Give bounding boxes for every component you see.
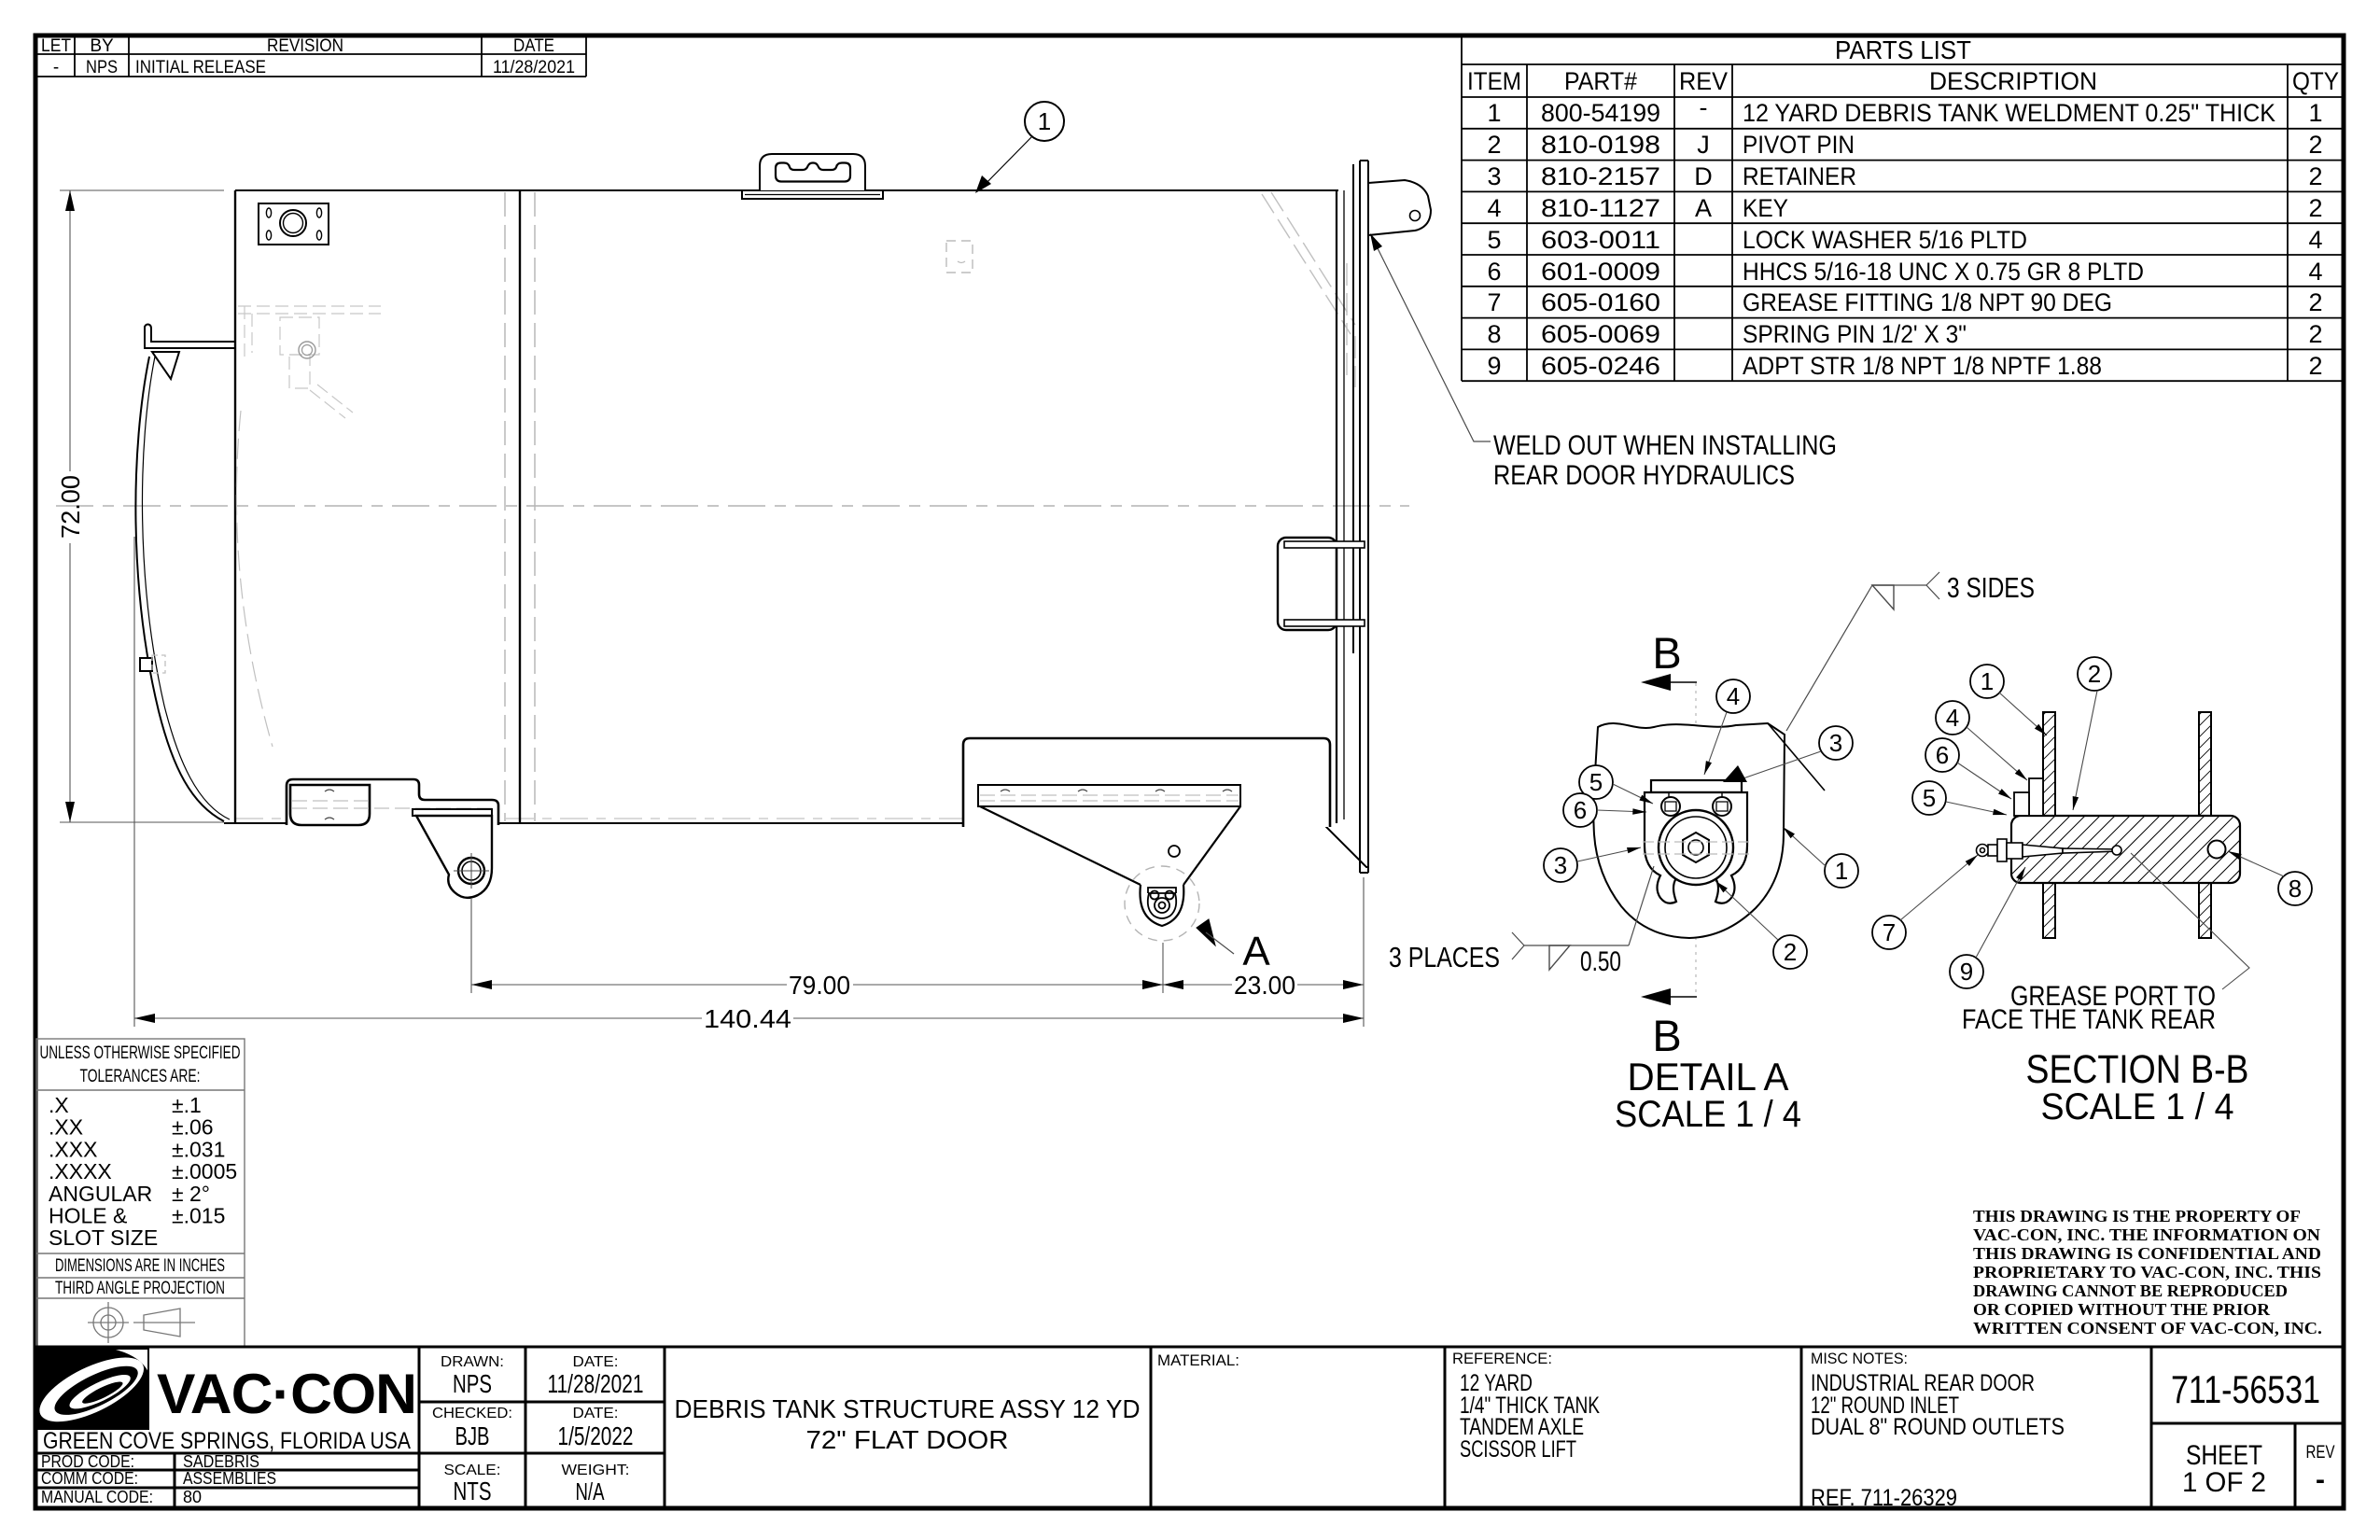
svg-text:TOLERANCES ARE:: TOLERANCES ARE:	[80, 1067, 201, 1086]
svg-text:DIMENSIONS ARE IN INCHES: DIMENSIONS ARE IN INCHES	[55, 1256, 225, 1276]
svg-text:DATE:: DATE:	[573, 1406, 619, 1421]
svg-text:HOLE &: HOLE &	[49, 1204, 127, 1228]
svg-text:2: 2	[2308, 288, 2322, 316]
svg-text:±.015: ±.015	[172, 1204, 225, 1228]
svg-text:8: 8	[1487, 320, 1501, 348]
svg-text:WELD OUT WHEN INSTALLING: WELD OUT WHEN INSTALLING	[1493, 430, 1837, 461]
svg-text:NTS: NTS	[454, 1477, 492, 1505]
svg-text:MANUAL CODE:: MANUAL CODE:	[41, 1488, 153, 1506]
svg-text:± 2°: ± 2°	[172, 1182, 210, 1206]
svg-text:REF. 711-26329: REF. 711-26329	[1811, 1485, 1957, 1511]
svg-text:2: 2	[2308, 320, 2322, 348]
svg-text:5: 5	[1487, 226, 1501, 254]
svg-text:DATE: DATE	[513, 36, 554, 56]
svg-text:B: B	[1652, 628, 1681, 678]
svg-text:711-56531: 711-56531	[2171, 1367, 2320, 1411]
svg-text:.XXX: .XXX	[49, 1137, 97, 1161]
svg-text:NPS: NPS	[453, 1369, 492, 1398]
svg-text:±.031: ±.031	[172, 1137, 225, 1161]
svg-text:PROD CODE:: PROD CODE:	[41, 1452, 134, 1471]
svg-text:D: D	[1694, 162, 1713, 190]
svg-text:UNLESS OTHERWISE SPECIFIED: UNLESS OTHERWISE SPECIFIED	[40, 1043, 241, 1063]
svg-text:810-0198: 810-0198	[1541, 131, 1660, 159]
svg-text:4: 4	[1946, 704, 1959, 732]
svg-text:2: 2	[2308, 194, 2322, 222]
svg-text:1 OF 2: 1 OF 2	[2182, 1467, 2266, 1498]
svg-text:810-1127: 810-1127	[1541, 194, 1660, 222]
svg-text:SLOT SIZE: SLOT SIZE	[49, 1225, 158, 1250]
svg-text:REV: REV	[1679, 67, 1728, 95]
svg-text:BJB: BJB	[455, 1421, 490, 1450]
svg-text:11/28/2021: 11/28/2021	[493, 58, 575, 77]
svg-text:COMM CODE:: COMM CODE:	[41, 1469, 138, 1488]
svg-text:DESCRIPTION: DESCRIPTION	[1929, 67, 2097, 95]
svg-text:SADEBRIS: SADEBRIS	[183, 1452, 259, 1471]
svg-text:8: 8	[2289, 875, 2302, 903]
svg-text:PART#: PART#	[1564, 67, 1637, 95]
svg-text:1: 1	[2308, 99, 2322, 127]
svg-text:9: 9	[1487, 352, 1501, 380]
svg-text:BY: BY	[90, 36, 114, 56]
svg-text:DATE:: DATE:	[573, 1354, 619, 1370]
svg-text:ANGULAR: ANGULAR	[49, 1182, 152, 1206]
svg-text:GREASE FITTING 1/8 NPT 90 DEG: GREASE FITTING 1/8 NPT 90 DEG	[1743, 288, 2112, 316]
svg-text:VAC·CON: VAC·CON	[157, 1363, 416, 1425]
svg-text:3: 3	[1554, 851, 1567, 879]
svg-text:2: 2	[2308, 162, 2322, 190]
svg-text:ADPT STR 1/8 NPT 1/8 NPTF 1.88: ADPT STR 1/8 NPT 1/8 NPTF 1.88	[1743, 352, 2102, 380]
svg-text:1: 1	[1038, 107, 1051, 135]
svg-text:INITIAL RELEASE: INITIAL RELEASE	[135, 58, 266, 77]
svg-text:SCALE 1 / 4: SCALE 1 / 4	[1615, 1094, 1801, 1135]
svg-text:MATERIAL:: MATERIAL:	[1157, 1351, 1239, 1369]
svg-text:0.50: 0.50	[1580, 946, 1621, 977]
svg-text:2: 2	[2088, 660, 2101, 688]
svg-text:80: 80	[183, 1488, 202, 1506]
svg-text:HHCS 5/16-18 UNC X 0.75 GR 8 P: HHCS 5/16-18 UNC X 0.75 GR 8 PLTD	[1743, 258, 2144, 286]
svg-text:72.00: 72.00	[56, 475, 85, 539]
svg-text:OR COPIED WITHOUT THE PRIOR: OR COPIED WITHOUT THE PRIOR	[1973, 1300, 2270, 1319]
svg-text:±.06: ±.06	[172, 1115, 214, 1140]
svg-text:±.0005: ±.0005	[172, 1159, 237, 1183]
svg-text:6: 6	[1487, 258, 1501, 286]
svg-text:DETAIL A: DETAIL A	[1628, 1055, 1789, 1099]
svg-text:REFERENCE:: REFERENCE:	[1452, 1350, 1552, 1367]
svg-text:DRAWN:: DRAWN:	[441, 1354, 504, 1370]
svg-text:QTY: QTY	[2292, 67, 2339, 95]
svg-text:VAC-CON, INC. THE INFORMATION: VAC-CON, INC. THE INFORMATION ON	[1973, 1225, 2320, 1244]
svg-text:NPS: NPS	[86, 58, 118, 77]
svg-text:72" FLAT DOOR: 72" FLAT DOOR	[806, 1425, 1009, 1454]
svg-text:605-0246: 605-0246	[1541, 352, 1660, 380]
svg-text:PIVOT PIN: PIVOT PIN	[1743, 131, 1855, 159]
svg-text:79.00: 79.00	[789, 971, 850, 1000]
svg-text:11/28/2021: 11/28/2021	[548, 1369, 644, 1398]
svg-text:REVISION: REVISION	[267, 36, 343, 56]
svg-text:B: B	[1652, 1011, 1681, 1060]
svg-text:1/5/2022: 1/5/2022	[558, 1421, 634, 1450]
svg-text:LET: LET	[41, 36, 71, 56]
svg-text:PROPRIETARY TO VAC-CON, INC.: PROPRIETARY TO VAC-CON, INC. THIS	[1973, 1263, 2321, 1281]
svg-text:DUAL 8" ROUND OUTLETS: DUAL 8" ROUND OUTLETS	[1811, 1414, 2065, 1440]
svg-text:605-0160: 605-0160	[1541, 288, 1660, 316]
svg-text:THIS DRAWING IS THE PROPERTY O: THIS DRAWING IS THE PROPERTY OF	[1973, 1207, 2301, 1225]
svg-text:ASSEMBLIES: ASSEMBLIES	[183, 1469, 276, 1488]
svg-text:2: 2	[2308, 131, 2322, 159]
svg-text:5: 5	[1923, 784, 1936, 812]
svg-text:603-0011: 603-0011	[1541, 226, 1660, 254]
svg-text:-: -	[1700, 93, 1708, 121]
svg-text:±.1: ±.1	[172, 1093, 202, 1117]
svg-text:DRAWING CANNOT BE REPRODUCED: DRAWING CANNOT BE REPRODUCED	[1973, 1281, 2288, 1300]
svg-text:3: 3	[1829, 729, 1842, 757]
svg-text:2: 2	[1784, 938, 1797, 966]
svg-text:MISC NOTES:: MISC NOTES:	[1811, 1350, 1908, 1367]
svg-text:WRITTEN CONSENT OF VAC-CON, IN: WRITTEN CONSENT OF VAC-CON, INC.	[1973, 1319, 2322, 1337]
svg-text:601-0009: 601-0009	[1541, 258, 1660, 286]
svg-text:REAR DOOR HYDRAULICS: REAR DOOR HYDRAULICS	[1493, 460, 1795, 491]
svg-text:4: 4	[1727, 682, 1740, 710]
svg-text:12 YARD DEBRIS TANK WELDMENT 0: 12 YARD DEBRIS TANK WELDMENT 0.25" THICK	[1743, 99, 2275, 127]
svg-text:4: 4	[2308, 226, 2322, 254]
svg-text:GREEN COVE SPRINGS, FLORIDA US: GREEN COVE SPRINGS, FLORIDA USA	[43, 1428, 411, 1454]
svg-text:WEIGHT:: WEIGHT:	[562, 1463, 630, 1478]
svg-text:A: A	[1242, 929, 1270, 974]
svg-text:SCISSOR LIFT: SCISSOR LIFT	[1460, 1436, 1576, 1463]
svg-text:-: -	[53, 58, 59, 77]
svg-text:140.44: 140.44	[704, 1004, 791, 1033]
svg-text:DEBRIS TANK STRUCTURE ASSY 12: DEBRIS TANK STRUCTURE ASSY 12 YD	[675, 1394, 1141, 1423]
svg-text:1: 1	[1835, 857, 1848, 885]
svg-text:RETAINER: RETAINER	[1743, 162, 1856, 190]
svg-text:REV: REV	[2306, 1443, 2335, 1463]
svg-text:810-2157: 810-2157	[1541, 162, 1660, 190]
svg-text:7: 7	[1883, 918, 1896, 946]
svg-text:6: 6	[1936, 741, 1949, 769]
svg-text:A: A	[1695, 194, 1712, 222]
svg-text:605-0069: 605-0069	[1541, 320, 1660, 348]
svg-text:KEY: KEY	[1743, 194, 1788, 222]
svg-text:2: 2	[2308, 352, 2322, 380]
svg-text:7: 7	[1487, 288, 1501, 316]
svg-text:800-54199: 800-54199	[1541, 99, 1660, 127]
svg-text:.XXXX: .XXXX	[49, 1159, 112, 1183]
svg-text:THIRD ANGLE PROJECTION: THIRD ANGLE PROJECTION	[55, 1279, 225, 1298]
svg-text:5: 5	[1589, 768, 1603, 796]
svg-text:LOCK WASHER 5/16 PLTD: LOCK WASHER 5/16 PLTD	[1743, 226, 2027, 254]
svg-text:2: 2	[1487, 131, 1501, 159]
svg-text:J: J	[1697, 131, 1710, 159]
svg-text:FACE THE TANK REAR: FACE THE TANK REAR	[1962, 1004, 2216, 1035]
svg-text:9: 9	[1960, 958, 1973, 986]
svg-text:4: 4	[1487, 194, 1501, 222]
svg-text:-: -	[2316, 1464, 2325, 1495]
svg-text:SPRING PIN 1/2' X 3": SPRING PIN 1/2' X 3"	[1743, 320, 1967, 348]
svg-text:.XX: .XX	[49, 1115, 83, 1140]
svg-text:SECTION B-B: SECTION B-B	[2026, 1047, 2249, 1092]
svg-text:1: 1	[1487, 99, 1501, 127]
svg-text:23.00: 23.00	[1234, 971, 1295, 1000]
svg-text:6: 6	[1574, 796, 1587, 824]
svg-text:N/A: N/A	[576, 1477, 605, 1505]
svg-text:3 PLACES: 3 PLACES	[1389, 941, 1500, 973]
svg-text:.X: .X	[49, 1093, 69, 1117]
svg-text:ITEM: ITEM	[1467, 67, 1521, 95]
svg-text:SCALE 1 / 4: SCALE 1 / 4	[2041, 1086, 2234, 1127]
svg-text:1: 1	[1981, 667, 1994, 695]
svg-text:3: 3	[1487, 162, 1501, 190]
svg-text:PARTS LIST: PARTS LIST	[1835, 35, 1971, 64]
svg-text:THIS DRAWING IS CONFIDENTIAL A: THIS DRAWING IS CONFIDENTIAL AND	[1973, 1244, 2321, 1263]
svg-text:CHECKED:: CHECKED:	[432, 1406, 512, 1421]
svg-text:4: 4	[2308, 258, 2322, 286]
svg-text:3 SIDES: 3 SIDES	[1947, 571, 2035, 604]
